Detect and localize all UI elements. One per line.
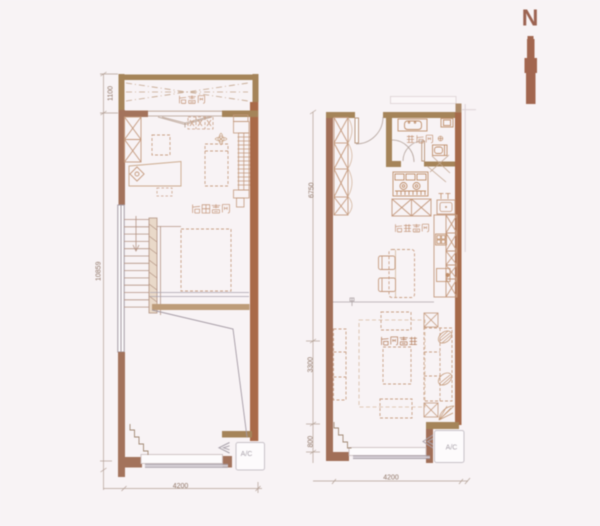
svg-text:N: N <box>522 5 539 31</box>
svg-text:800: 800 <box>308 436 315 448</box>
svg-text:A/C: A/C <box>241 451 253 458</box>
svg-text:4200: 4200 <box>173 483 189 490</box>
svg-text:1100: 1100 <box>108 86 115 101</box>
svg-text:A/C: A/C <box>446 445 458 452</box>
svg-text:10859: 10859 <box>96 261 103 281</box>
svg-text:4200: 4200 <box>383 475 399 482</box>
svg-text:3300: 3300 <box>308 357 315 373</box>
svg-text:6750: 6750 <box>309 182 316 198</box>
